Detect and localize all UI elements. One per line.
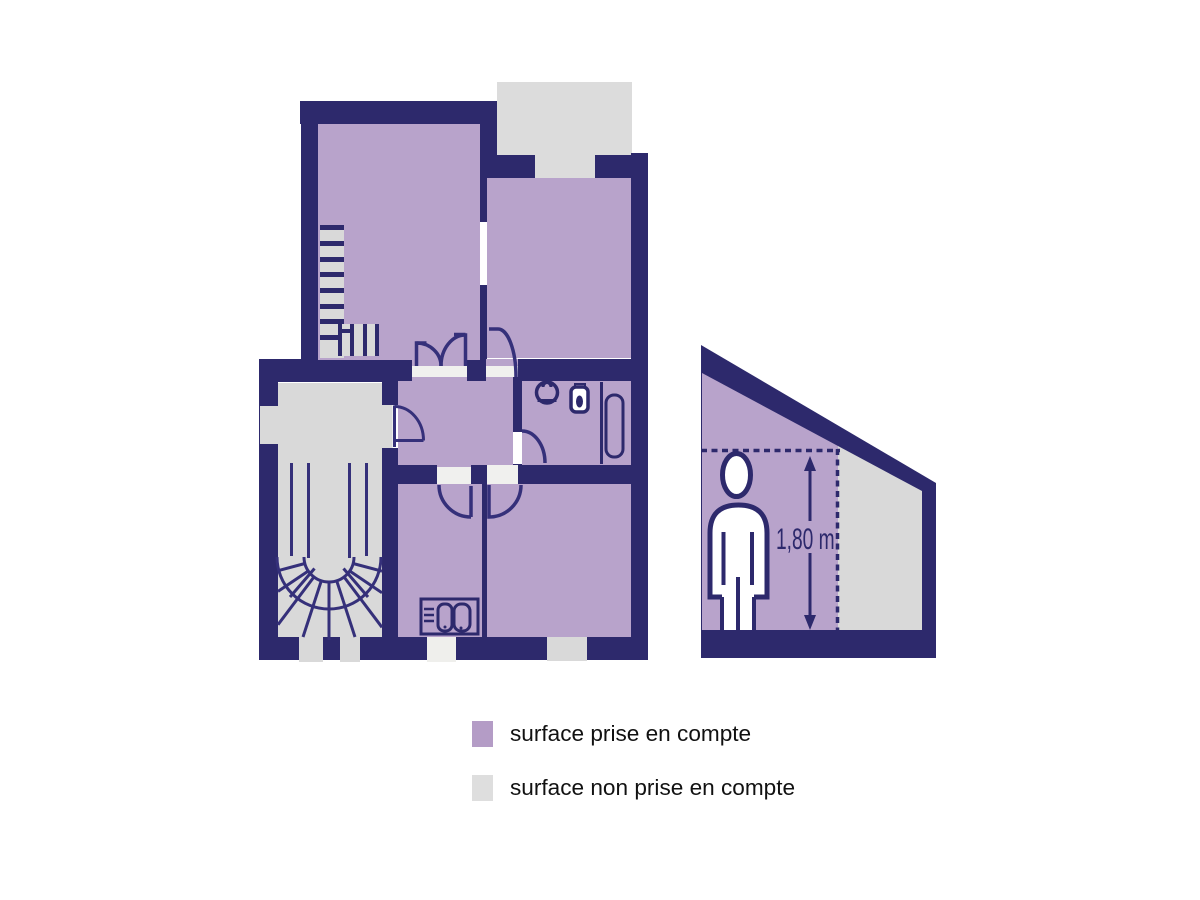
svg-text:surface prise en compte: surface prise en compte xyxy=(510,721,751,746)
svg-text:1,80 m: 1,80 m xyxy=(776,523,835,556)
svg-text:surface non prise en compte: surface non prise en compte xyxy=(510,775,795,800)
